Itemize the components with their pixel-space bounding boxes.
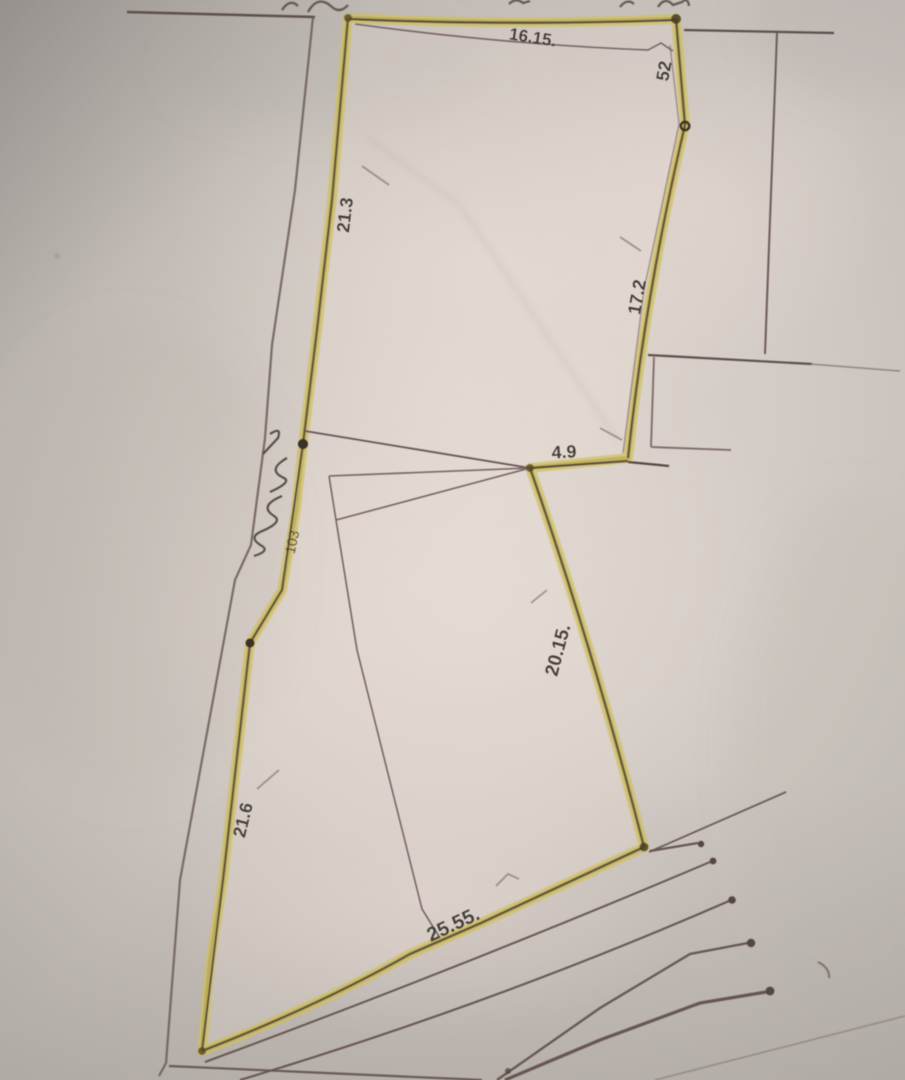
svg-text:52: 52 [652,59,675,82]
svg-text:21.3: 21.3 [333,196,357,233]
svg-text:4.9: 4.9 [551,441,577,462]
